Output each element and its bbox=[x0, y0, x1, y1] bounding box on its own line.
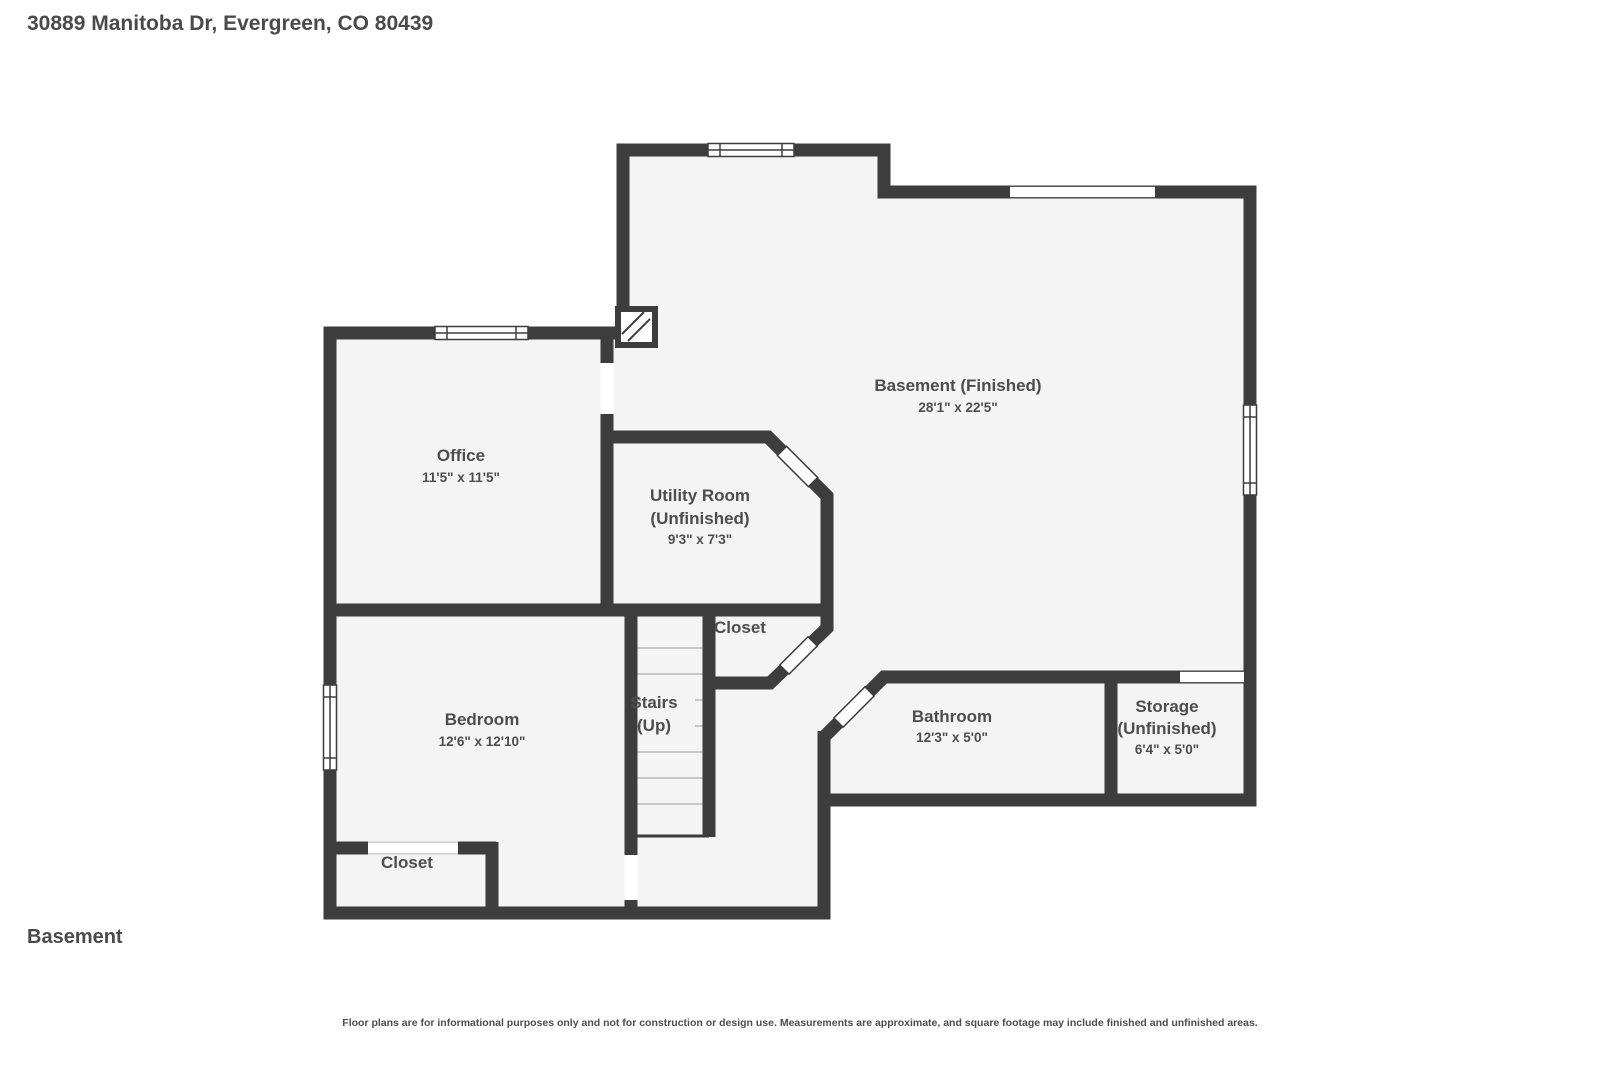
bedroom-room-dims: 12'6" x 12'10" bbox=[439, 734, 526, 749]
basement-room-name: Basement (Finished) bbox=[874, 376, 1041, 395]
office-room-dims: 11'5" x 11'5" bbox=[422, 470, 500, 485]
floor-name-label: Basement bbox=[27, 926, 123, 949]
office-door-opening bbox=[601, 363, 614, 414]
utility-room-name2: (Unfinished) bbox=[650, 509, 749, 528]
office-room-name: Office bbox=[437, 446, 485, 465]
window-office bbox=[435, 327, 528, 340]
floor-plan-drawing: Basement (Finished) 28'1" x 22'5" Office… bbox=[0, 0, 1600, 1067]
window-top bbox=[708, 144, 794, 157]
storage-room-name2: (Unfinished) bbox=[1117, 719, 1216, 738]
stairs-name2: (Up) bbox=[637, 716, 671, 735]
basement-top-opening bbox=[1010, 186, 1155, 199]
chimney-symbol bbox=[618, 309, 655, 345]
bedroom-closet-name: Closet bbox=[381, 853, 433, 872]
storage-top-opening bbox=[1180, 671, 1244, 684]
storage-room-name: Storage bbox=[1135, 697, 1198, 716]
window-left bbox=[324, 685, 337, 770]
window-right bbox=[1244, 405, 1257, 495]
utility-room-dims: 9'3" x 7'3" bbox=[668, 532, 732, 547]
hall-closet-name: Closet bbox=[714, 618, 766, 637]
storage-room-dims: 6'4" x 5'0" bbox=[1135, 742, 1199, 757]
basement-room-dims: 28'1" x 22'5" bbox=[918, 400, 997, 415]
bathroom-room-dims: 12'3" x 5'0" bbox=[916, 730, 988, 745]
bathroom-room-name: Bathroom bbox=[912, 707, 992, 726]
bedroom-room-name: Bedroom bbox=[445, 710, 520, 729]
floor-plan-page: 30889 Manitoba Dr, Evergreen, CO 80439 bbox=[0, 0, 1600, 1067]
stairs-name: Stairs bbox=[630, 693, 677, 712]
utility-room-name: Utility Room bbox=[650, 486, 750, 505]
bedroom-door-opening bbox=[625, 855, 638, 900]
disclaimer-text: Floor plans are for informational purpos… bbox=[0, 1017, 1600, 1029]
